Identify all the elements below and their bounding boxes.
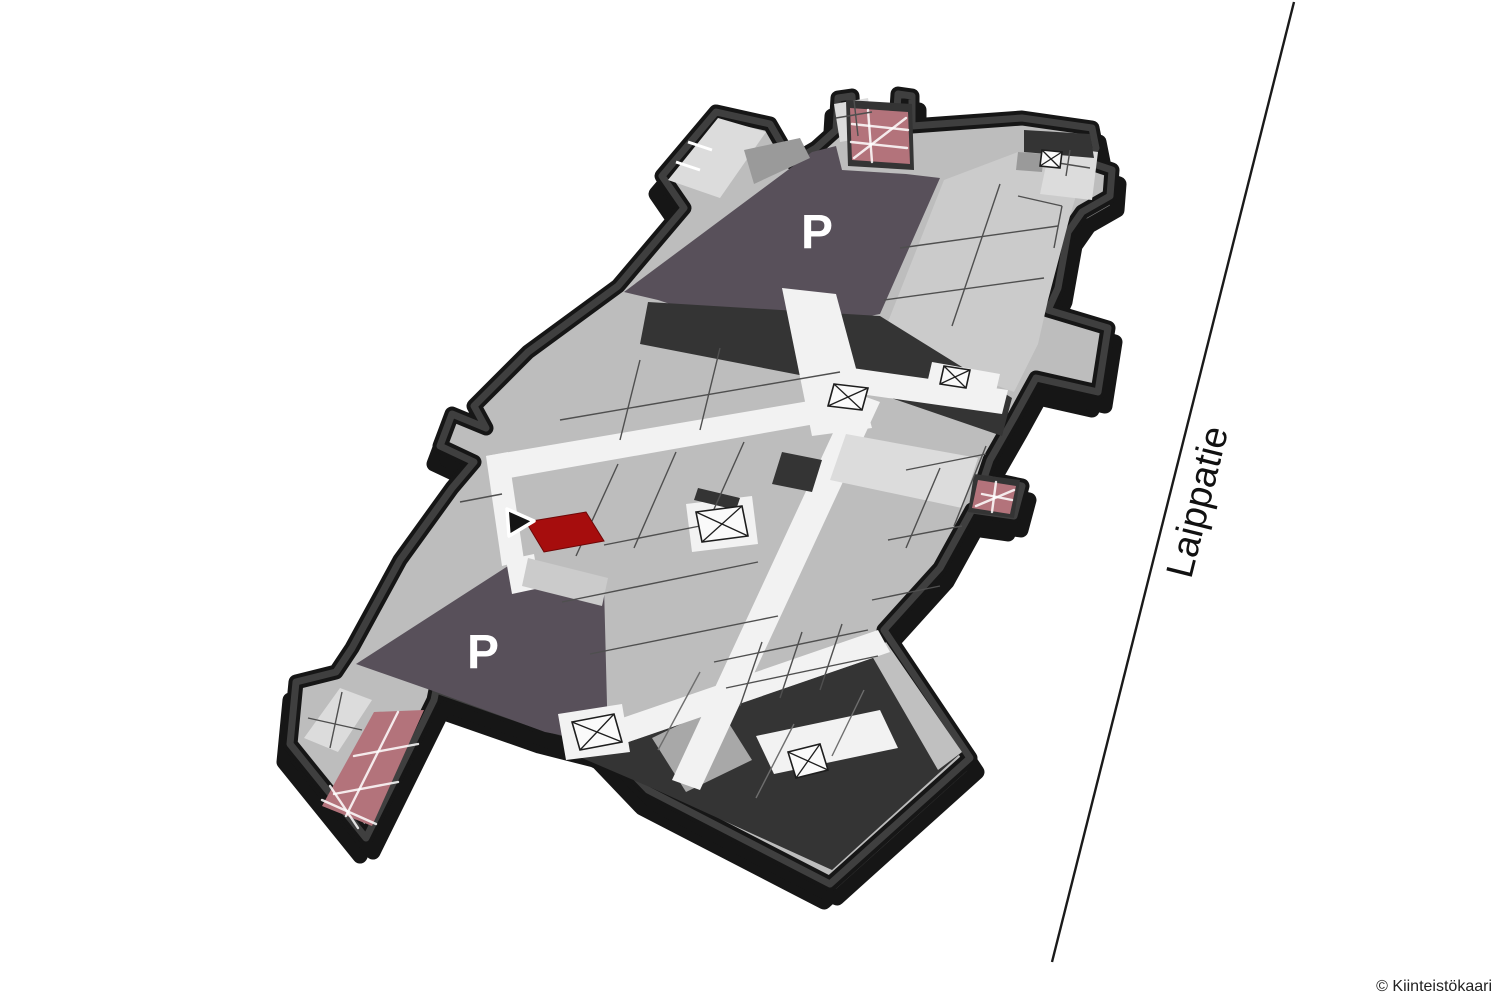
elevator-icon <box>940 366 970 388</box>
street-label: Laippatie <box>1159 422 1237 582</box>
elevator-icon <box>1040 150 1062 168</box>
floorplan-viewer: Laippatie <box>0 0 1500 1000</box>
floorplan-svg: Laippatie <box>0 0 1500 1000</box>
copyright-text: © Kiinteistökaari <box>1376 978 1492 995</box>
elevator-icon <box>696 506 748 542</box>
building: P P <box>284 94 1119 902</box>
parking-label-north: P <box>801 206 833 259</box>
elevator-icon <box>828 384 868 410</box>
parking-label-south: P <box>467 626 499 679</box>
